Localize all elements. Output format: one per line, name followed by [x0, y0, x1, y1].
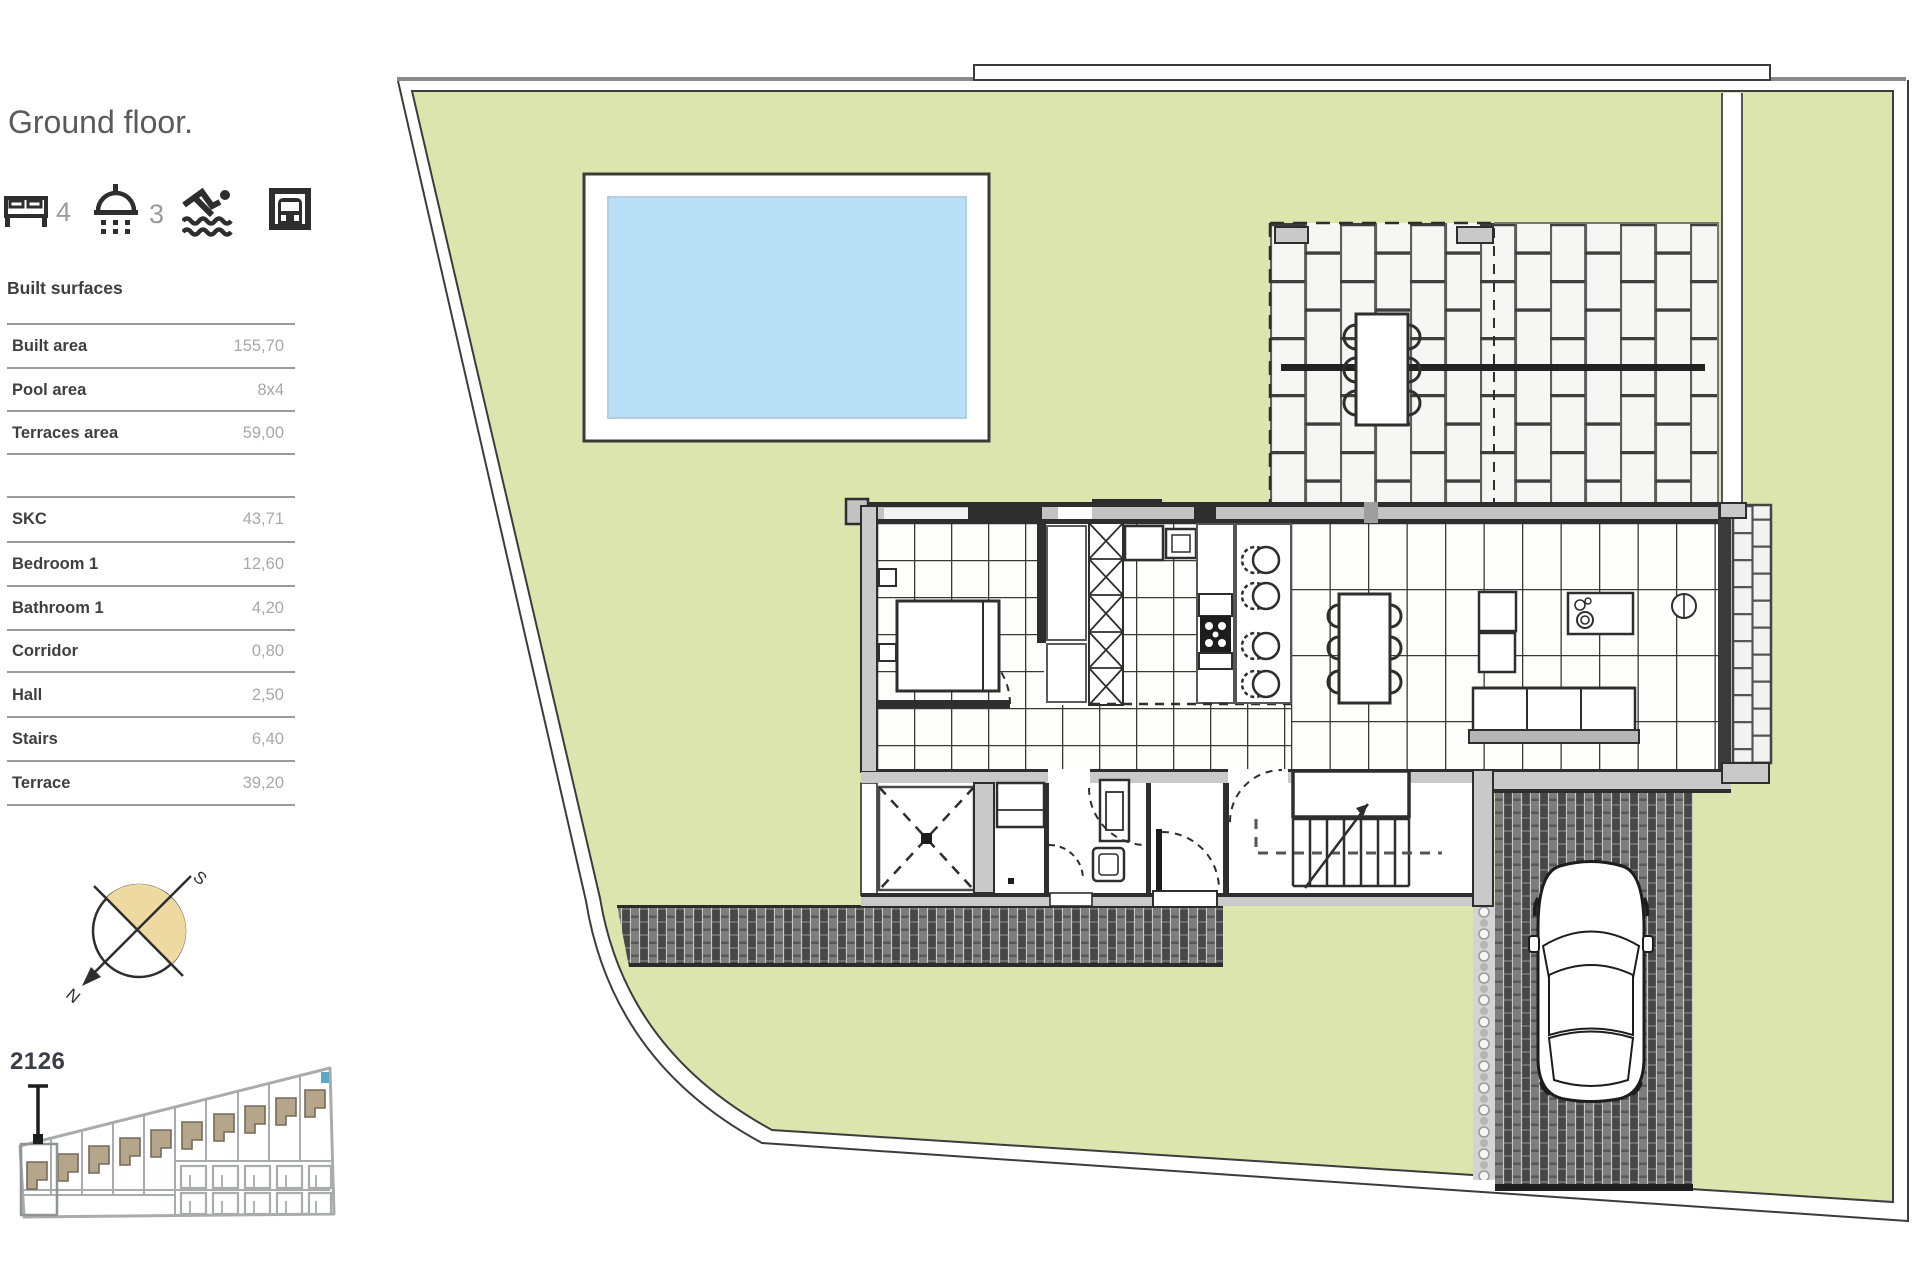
svg-text:S: S — [190, 867, 211, 889]
svg-text:N: N — [62, 985, 84, 1007]
